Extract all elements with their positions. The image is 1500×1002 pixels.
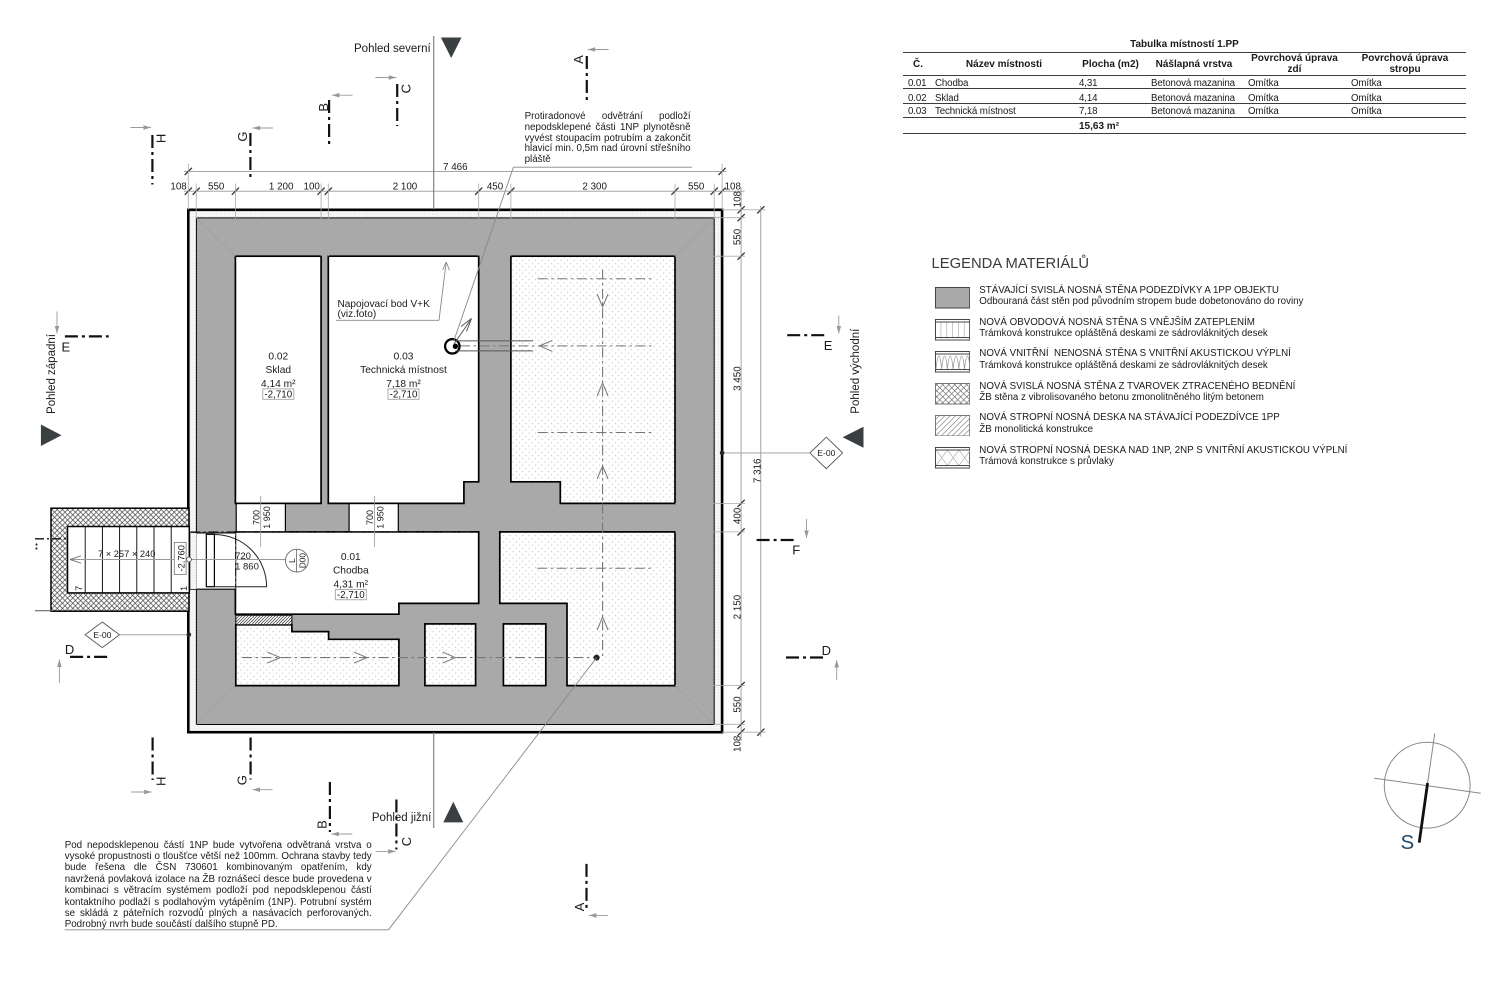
svg-text:D00: D00: [299, 553, 308, 568]
svg-text:700: 700: [251, 510, 261, 525]
svg-text:7 466: 7 466: [443, 162, 468, 173]
svg-text:L: L: [288, 558, 297, 563]
svg-text:H: H: [154, 777, 169, 786]
svg-text:4,14 m²: 4,14 m²: [261, 379, 296, 390]
svg-text:1 860: 1 860: [235, 561, 259, 572]
svg-text:7 316: 7 316: [752, 458, 763, 483]
svg-text:108: 108: [733, 190, 744, 207]
svg-text:550: 550: [688, 182, 705, 193]
svg-text:450: 450: [487, 182, 504, 193]
svg-text:H: H: [153, 134, 168, 143]
svg-text:0.01: 0.01: [341, 552, 361, 563]
svg-text:A: A: [572, 902, 587, 911]
svg-text:C: C: [399, 837, 414, 846]
svg-text:108: 108: [725, 182, 742, 193]
svg-text:Sklad: Sklad: [266, 365, 292, 376]
svg-text:100: 100: [304, 182, 321, 193]
svg-text:A: A: [571, 55, 586, 64]
svg-text:-2,710: -2,710: [390, 390, 418, 401]
svg-text:S: S: [1401, 831, 1415, 854]
svg-text:0.02: 0.02: [268, 352, 288, 363]
svg-text:B: B: [315, 820, 330, 829]
svg-text:1 950: 1 950: [262, 506, 272, 529]
svg-text:Pohled východní: Pohled východní: [850, 328, 862, 414]
svg-text:Chodba: Chodba: [333, 566, 369, 577]
svg-text:700: 700: [365, 510, 375, 525]
svg-text:7 × 257 × 240: 7 × 257 × 240: [98, 549, 155, 559]
svg-text:Pohled západní: Pohled západní: [46, 333, 58, 414]
svg-text:2 150: 2 150: [733, 594, 744, 619]
svg-text:G: G: [235, 131, 250, 141]
svg-text:C: C: [398, 84, 413, 93]
svg-text:550: 550: [733, 696, 744, 713]
svg-text:G: G: [234, 775, 249, 785]
svg-text:4,31 m²: 4,31 m²: [334, 579, 369, 590]
svg-text:E: E: [824, 338, 833, 353]
svg-text:7: 7: [74, 586, 84, 591]
svg-text:2 100: 2 100: [393, 182, 418, 193]
svg-text:-2,760: -2,760: [176, 545, 186, 571]
svg-text:3 450: 3 450: [733, 366, 744, 391]
svg-text:108: 108: [170, 182, 187, 193]
svg-text:108: 108: [733, 735, 744, 752]
svg-text:1: 1: [179, 586, 189, 591]
svg-text:550: 550: [733, 228, 744, 245]
svg-text:E-00: E-00: [817, 448, 835, 458]
svg-text:1 200: 1 200: [269, 182, 294, 193]
svg-text:Pohled jižní: Pohled jižní: [372, 812, 432, 824]
svg-text:F: F: [792, 543, 800, 558]
svg-text:550: 550: [208, 182, 225, 193]
svg-text:2 300: 2 300: [582, 182, 607, 193]
svg-text:400: 400: [733, 507, 744, 524]
svg-text:0.03: 0.03: [394, 352, 414, 363]
svg-text:B: B: [316, 103, 331, 112]
svg-text:D: D: [822, 643, 831, 658]
svg-text:D: D: [65, 642, 74, 657]
svg-text:Technická místnost: Technická místnost: [360, 365, 447, 376]
svg-text:E-00: E-00: [93, 630, 111, 640]
svg-text:Pohled severní: Pohled severní: [354, 43, 432, 55]
svg-text:E: E: [62, 339, 71, 354]
svg-text:7,18 m²: 7,18 m²: [386, 379, 421, 390]
svg-text:-2,710: -2,710: [337, 590, 365, 601]
svg-text:1 950: 1 950: [376, 506, 386, 529]
svg-text:-2,710: -2,710: [264, 390, 292, 401]
